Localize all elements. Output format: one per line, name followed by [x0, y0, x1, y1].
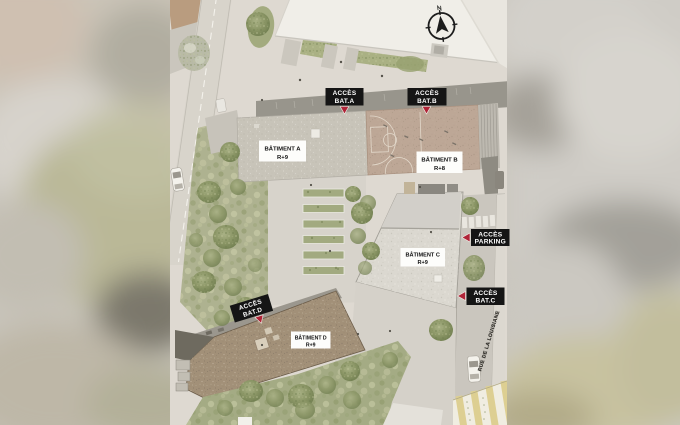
svg-text:R+8: R+8 — [434, 166, 446, 172]
svg-text:PARKING: PARKING — [475, 239, 506, 246]
svg-text:ACCÈS: ACCÈS — [415, 88, 439, 97]
svg-text:R+9: R+9 — [417, 260, 427, 266]
svg-text:R+9: R+9 — [306, 342, 316, 348]
svg-text:ACCÈS: ACCÈS — [333, 88, 357, 97]
svg-text:BÂTIMENT D: BÂTIMENT D — [295, 334, 327, 341]
svg-text:BÂTIMENT C: BÂTIMENT C — [405, 252, 440, 259]
svg-text:BÂTIMENT A: BÂTIMENT A — [264, 145, 301, 152]
svg-text:ACCÈS: ACCÈS — [473, 288, 497, 297]
svg-text:ACCÈS: ACCÈS — [478, 229, 502, 238]
svg-text:R+9: R+9 — [277, 155, 289, 161]
svg-text:BAT.A: BAT.A — [335, 98, 355, 105]
svg-text:BAT.C: BAT.C — [476, 297, 496, 304]
svg-text:BAT.B: BAT.B — [417, 98, 437, 105]
svg-text:BÂTIMENT B: BÂTIMENT B — [421, 156, 457, 163]
